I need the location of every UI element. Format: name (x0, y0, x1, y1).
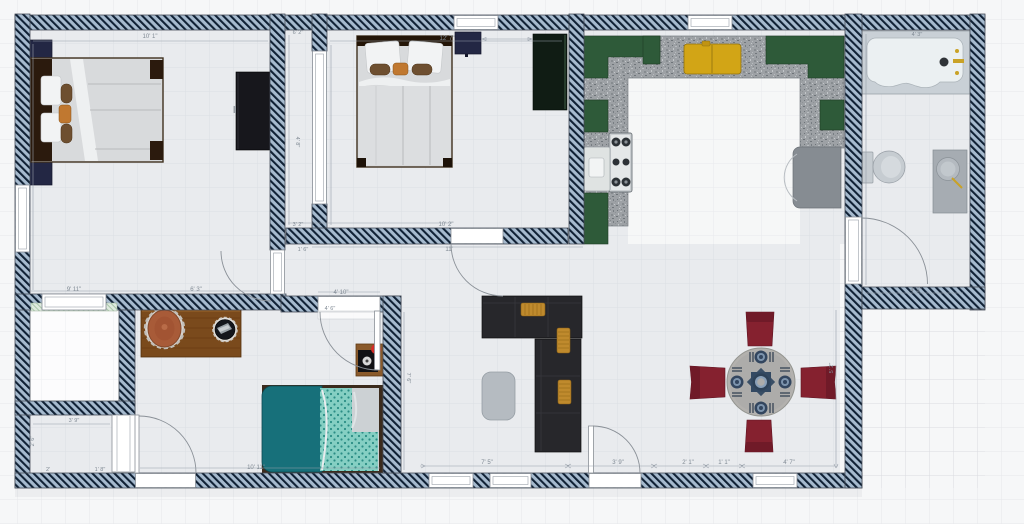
svg-text:2': 2' (46, 467, 50, 473)
svg-text:12' 7": 12' 7" (440, 36, 455, 42)
svg-text:6' 3": 6' 3" (190, 287, 202, 293)
svg-text:1' 6": 1' 6" (298, 247, 309, 253)
svg-text:10' 1": 10' 1" (143, 34, 158, 40)
svg-text:4' 7": 4' 7" (783, 460, 795, 466)
svg-text:1' 1": 1' 1" (718, 460, 730, 466)
svg-text:5' 2": 5' 2" (829, 363, 835, 374)
svg-text:3' 2": 3' 2" (293, 222, 304, 228)
svg-text:4' 10": 4' 10" (334, 290, 349, 296)
svg-text:4' 3": 4' 3" (912, 32, 923, 38)
svg-text:10' 11": 10' 11" (247, 465, 265, 471)
svg-text:6' 2": 6' 2" (293, 30, 304, 36)
svg-text:3' 9": 3' 9" (69, 418, 80, 424)
svg-text:2' 6": 2' 6" (30, 436, 36, 447)
svg-text:7' 5": 7' 5" (481, 460, 493, 466)
svg-text:11': 11' (445, 247, 452, 253)
svg-text:10' 2": 10' 2" (439, 222, 454, 228)
svg-text:1' 8": 1' 8" (95, 467, 106, 473)
svg-text:2' 1": 2' 1" (682, 460, 694, 466)
svg-text:7' 6": 7' 6" (405, 373, 411, 384)
svg-text:4' 8": 4' 8" (294, 137, 300, 148)
svg-text:9' 11": 9' 11" (67, 287, 82, 293)
svg-text:4' 6": 4' 6" (325, 306, 336, 312)
svg-text:4' 8": 4' 8" (910, 288, 922, 294)
svg-text:3' 9": 3' 9" (612, 460, 624, 466)
